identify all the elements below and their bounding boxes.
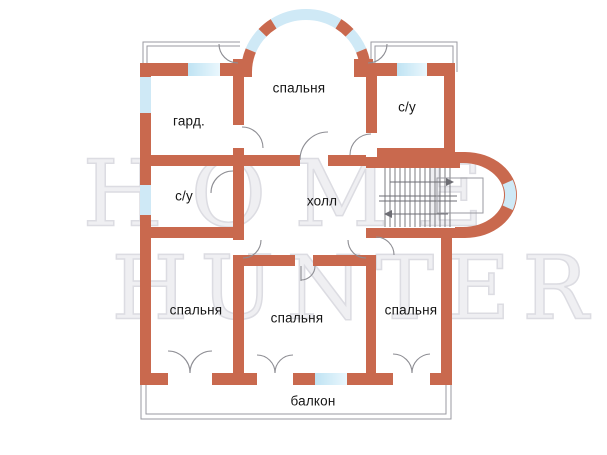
stair-direction-arrows xyxy=(384,178,454,218)
room-label-bedroom-top: спальня xyxy=(273,81,326,96)
bay-window xyxy=(247,15,366,72)
room-label-bathroom-left: с/у xyxy=(175,189,193,204)
floor-plan-drawing xyxy=(0,0,607,455)
floor-plan: HOME HUNTER xyxy=(0,0,607,455)
room-label-wardrobe: гард. xyxy=(173,114,205,129)
room-label-bathroom-top-right: с/у xyxy=(398,100,416,115)
stair-tower xyxy=(455,152,517,238)
room-label-bedroom-bottom-left: спальня xyxy=(170,303,223,318)
windows xyxy=(140,63,427,385)
room-label-bedroom-bottom-right: спальня xyxy=(385,303,438,318)
room-label-hall: холл xyxy=(307,194,337,209)
room-label-bedroom-bottom-middle: спальня xyxy=(271,311,324,326)
room-label-balcony: балкон xyxy=(290,394,335,409)
staircase xyxy=(379,168,483,227)
